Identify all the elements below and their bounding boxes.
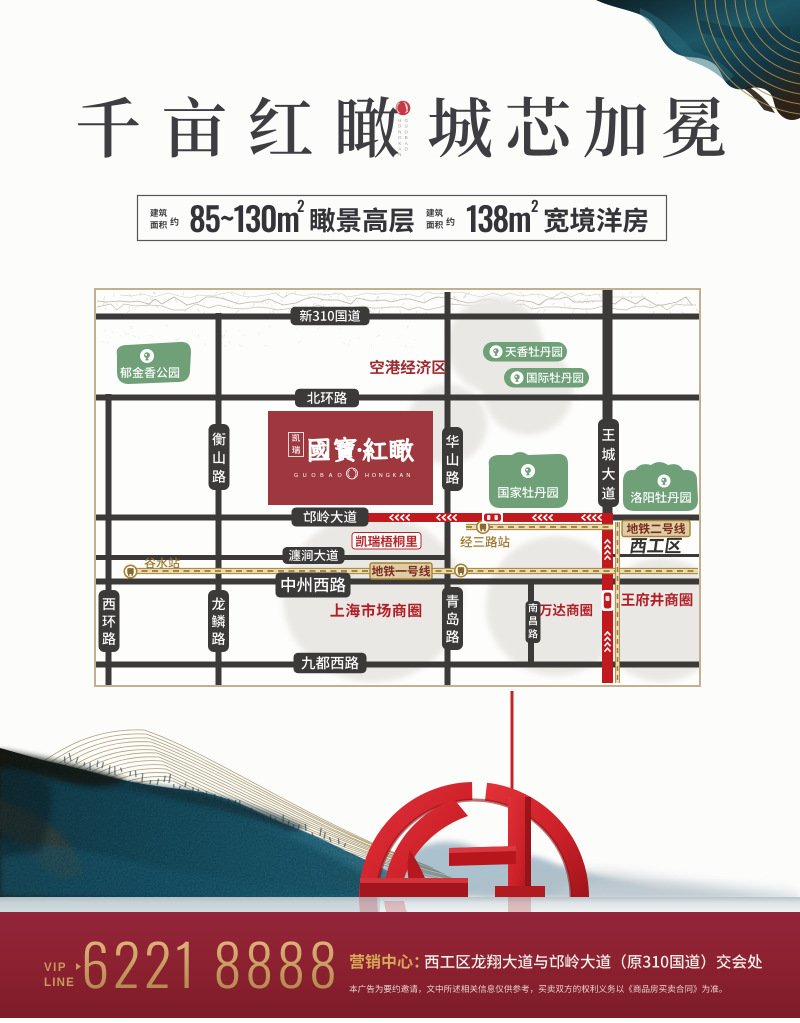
svg-text:N: N [398,152,401,157]
svg-text:G: G [386,473,390,479]
svg-text:A: A [405,141,408,146]
svg-text:N: N [406,473,410,479]
svg-text:H: H [398,118,401,123]
svg-text:O: O [311,473,315,479]
svg-text:A: A [329,473,333,479]
svg-text:B: B [405,135,408,140]
svg-text:H: H [365,473,369,479]
svg-text:U: U [405,124,408,129]
svg-text:N: N [379,473,383,479]
svg-text:O: O [338,473,342,479]
svg-text:LINE: LINE [44,977,75,989]
svg-text:G: G [294,473,298,479]
svg-text:U: U [303,473,307,479]
svg-text:A: A [398,147,401,152]
svg-text:K: K [393,473,397,479]
svg-text:B: B [320,473,324,479]
svg-text:O: O [372,473,376,479]
svg-text:VIP: VIP [44,962,67,974]
svg-text:A: A [400,473,404,479]
svg-text:N: N [398,129,401,134]
svg-text:K: K [398,141,401,146]
